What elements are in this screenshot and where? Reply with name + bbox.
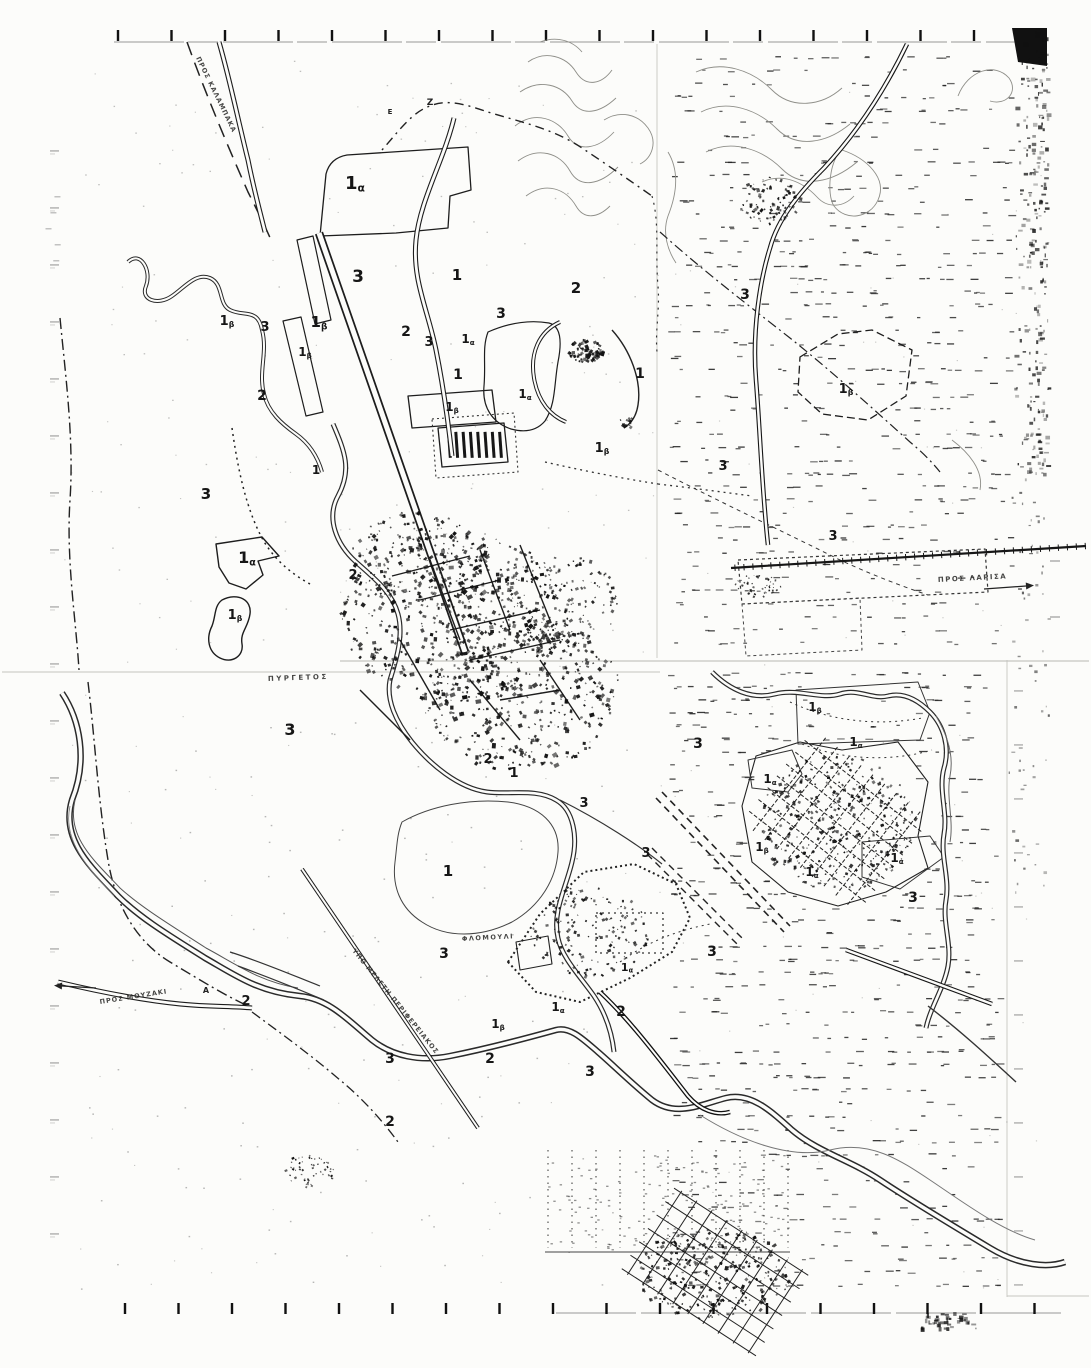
edge-mark [50,492,59,494]
frame-tick [819,1303,821,1314]
zone-label-1: 1 [635,366,645,382]
frame-tick [498,1303,500,1314]
zone-label-3: 3 [424,335,433,350]
edge-mark [50,264,59,266]
frame-tick [866,30,868,41]
frame-tick [117,30,119,41]
zone-label-1: 1 [453,367,463,383]
zone-label-1: 1 [452,266,462,284]
edge-mark [50,1005,59,1007]
place-label: ΦΛΟΜΟΥΛΙ [462,932,515,943]
frame-tick [491,30,493,41]
zone-label-3: 3 [740,287,750,303]
edge-mark [1014,906,1023,908]
edge-mark [50,150,59,152]
zone-label-3: 3 [641,846,650,861]
zone-label-1α: 1α [461,332,474,347]
place-label: ΠΥΡΓΕΤΟΣ [268,673,329,683]
zone-label-2: 2 [616,1004,626,1020]
edge-mark [1014,690,1023,692]
edge-mark [1014,1176,1023,1178]
zone-label-2: 2 [571,279,581,297]
edge-mark [1014,798,1023,800]
zone-label-2: 2 [385,1114,395,1130]
frame-tick [384,30,386,41]
edge-mark [50,435,59,437]
edge-mark [50,663,59,665]
edge-mark [50,321,59,323]
zone-label-3: 3 [284,720,295,739]
edge-mark [1014,1230,1023,1232]
zone-label-1β: 1β [220,314,235,329]
zone-label-1α: 1α [518,387,531,402]
zone-label-3: 3 [585,1064,595,1080]
frame-tick [391,1303,393,1314]
edge-mark [50,606,59,608]
frame-tick [605,1303,607,1314]
zone-label-1β: 1β [298,345,312,360]
frame-tick [284,1303,286,1314]
zone-label-1β: 1β [491,1017,505,1032]
zone-label-3: 3 [496,306,506,322]
zone-label-3: 3 [908,890,918,906]
place-label: ΠΡΟΣ ΛΑΡΙΣΑ [938,572,1008,584]
zone-label-2: 2 [485,1051,495,1067]
frame-tick [338,1303,340,1314]
edge-mark [1014,852,1023,854]
zone-label-1β: 1β [595,441,610,456]
zone-label-1α: 1α [345,173,365,195]
frame-tick [224,30,226,41]
zone-label-1β: 1β [808,700,822,715]
zone-label-3: 3 [693,736,703,752]
zone-label-3: 3 [718,459,727,474]
edge-mark [50,378,59,380]
frame-tick [659,1303,661,1314]
frame-tick [552,1303,554,1314]
frame-tick [919,30,921,41]
frame-tick [759,30,761,41]
boundary-point-label: Ε [388,108,393,116]
rivers [62,258,1065,1265]
frame-tick [598,30,600,41]
frame-tick [980,1303,982,1314]
edge-mark [50,1233,59,1235]
zone-label-2: 2 [348,568,357,583]
scan-blotch [1012,28,1047,66]
edge-mark [1014,744,1023,746]
frame-tick [812,30,814,41]
frame-tick [331,30,333,41]
frame-tick [277,30,279,41]
zone-label-1β: 1β [311,313,328,332]
edge-mark [50,207,59,209]
zone-label-2: 2 [241,994,250,1009]
edge-mark [50,777,59,779]
frame-tick [973,30,975,41]
zone-label-3: 3 [707,944,717,960]
frame-tick [438,30,440,41]
frame-tick [652,30,654,41]
edge-mark [1014,1068,1023,1070]
edge-mark [1014,1122,1023,1124]
boundary-lines [60,42,940,1142]
zone-label-3: 3 [260,320,269,335]
railway-line [731,543,1086,571]
zone-label-3: 3 [579,796,588,811]
map-canvas: 1α31231β31β231α1β11α21β11β131α21β31β3332… [0,0,1091,1368]
edge-mark [50,549,59,551]
edge-mark [1014,1284,1023,1286]
edge-mark [1014,1014,1023,1016]
zone-label-1β: 1β [228,608,243,623]
zone-label-3: 3 [828,529,837,544]
zone-label-3: 3 [201,485,211,503]
edge-mark [50,1119,59,1121]
frame-tick [873,1303,875,1314]
edge-mark [50,891,59,893]
zone-label-3: 3 [439,946,449,962]
zone-label-1: 1 [443,862,453,880]
place-label: ΥΠΟ ΜΕΛΕΤΗ ΠΕΡΙΦΕΡΕΙΑΚΟΣ [350,946,441,1055]
edge-mark [50,834,59,836]
zone-label-1: 1 [509,766,518,781]
village-street-grids [622,738,923,1356]
edge-mark [1014,960,1023,962]
frame-tick [1033,1303,1035,1314]
zone-label-2: 2 [483,752,492,767]
frame-tick [170,30,172,41]
edge-mark [50,1062,59,1064]
zone-label-1β: 1β [755,840,769,855]
zone-label-1: 1 [312,463,320,477]
zone-label-1α: 1α [805,865,818,880]
boundary-point-label: Z [427,98,434,108]
zone-label-1α: 1α [621,961,634,975]
frame-tick [124,1303,126,1314]
edge-mark [50,720,59,722]
zone-label-3: 3 [385,1051,395,1067]
frame-tick [705,30,707,41]
edge-mark [50,948,59,950]
frame-tick [231,1303,233,1314]
scanned-zoning-map: 1α31231β31β231α1β11α21β11β131α21β31β3332… [0,0,1091,1368]
scan-artifacts [921,28,1052,1332]
zone-labels: 1α31231β31β231α1β11α21β11β131α21β31β3332… [201,173,918,1130]
zone-label-2: 2 [401,324,411,340]
zone-label-3: 3 [352,267,364,287]
frame-tick [177,1303,179,1314]
zone-label-2: 2 [257,388,267,404]
zone-label-1α: 1α [849,735,862,750]
sheet-seams [2,42,1089,1313]
zone-label-1β: 1β [445,400,459,415]
boundary-point-label: Α [203,986,210,995]
to-larisa-arrow [1026,583,1034,590]
parcel-dash-texture [64,56,1041,1290]
zone-label-1α: 1α [551,1000,564,1015]
frame-tick [545,30,547,41]
frame-tick [445,1303,447,1314]
edge-mark [50,1176,59,1178]
zone-label-1α: 1α [763,772,776,787]
zone-label-1α: 1α [238,548,256,568]
frame-tick [926,1303,928,1314]
